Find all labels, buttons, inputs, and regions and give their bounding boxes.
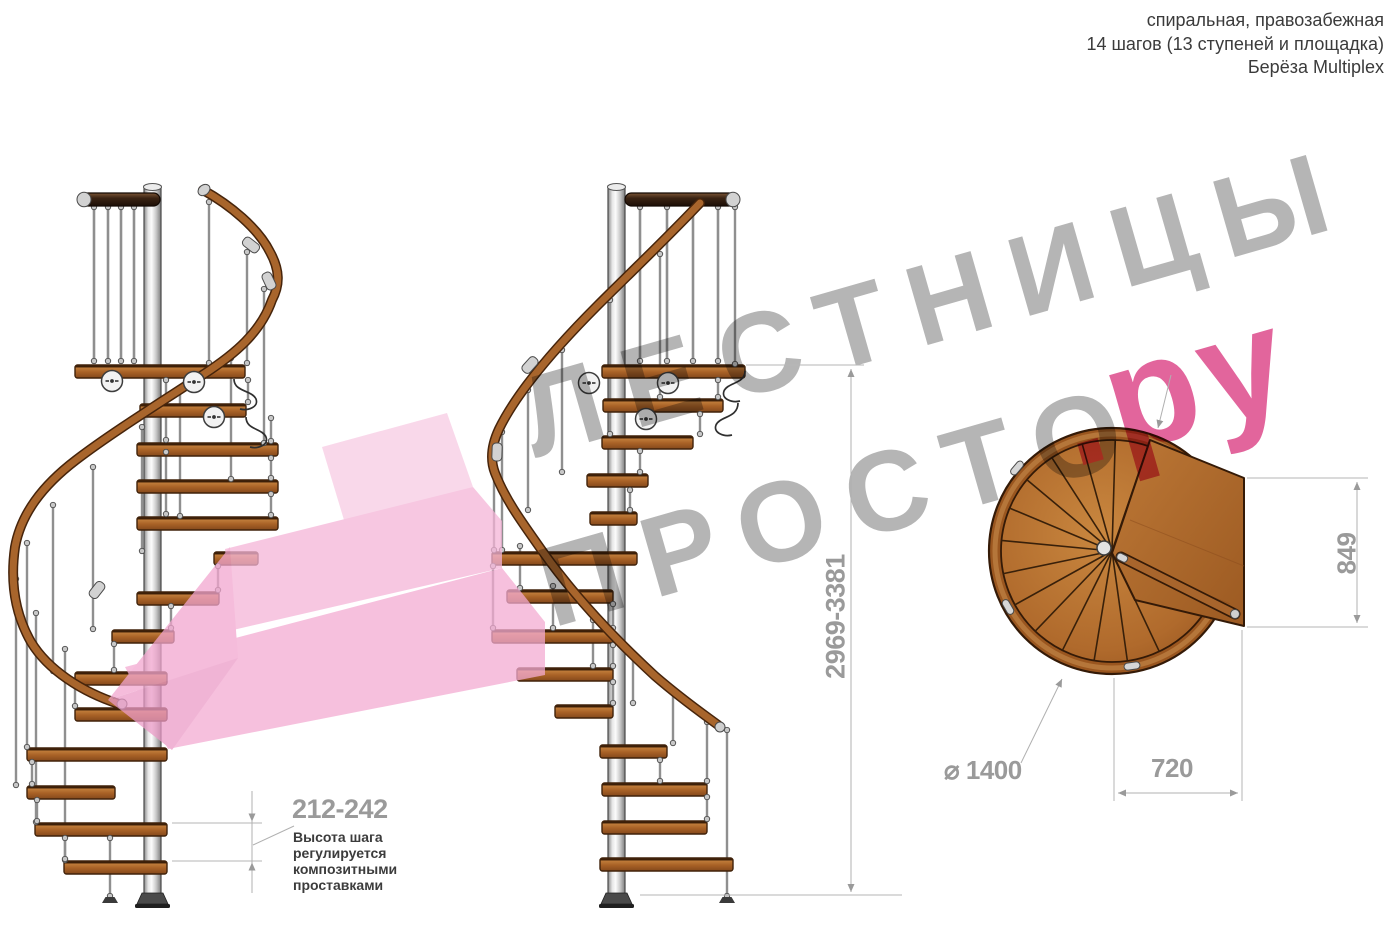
staircase-technical-drawing	[0, 0, 1400, 938]
side-view-left	[13, 182, 278, 908]
highlight-arrow	[108, 413, 545, 750]
plan-view	[989, 428, 1244, 674]
side-view-right	[490, 184, 745, 909]
drawing-page: ЛЕСТНИЦЫ ПРОСТО .ру	[0, 0, 1400, 938]
